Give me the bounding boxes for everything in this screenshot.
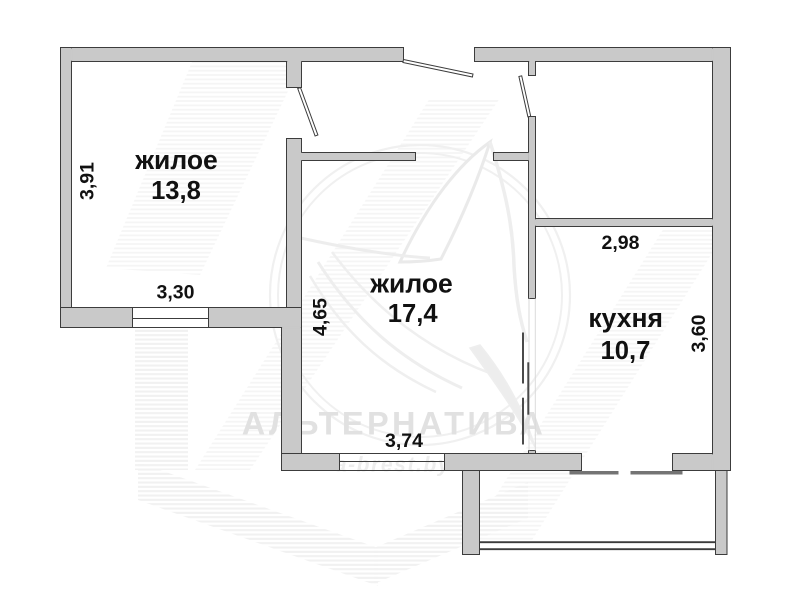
svg-text:жилое: жилое [369, 268, 453, 298]
svg-text:4,65: 4,65 [310, 298, 332, 336]
svg-text:2,98: 2,98 [602, 232, 640, 254]
svg-text:3,74: 3,74 [385, 430, 423, 452]
svg-text:10,7: 10,7 [600, 337, 650, 365]
svg-text:13,8: 13,8 [151, 177, 201, 205]
svg-text:3,60: 3,60 [688, 314, 710, 352]
svg-text:жилое: жилое [134, 145, 218, 175]
svg-text:3,30: 3,30 [157, 282, 195, 304]
svg-text:3,91: 3,91 [77, 162, 99, 200]
svg-text:17,4: 17,4 [388, 300, 439, 328]
svg-text:кухня: кухня [588, 303, 663, 333]
